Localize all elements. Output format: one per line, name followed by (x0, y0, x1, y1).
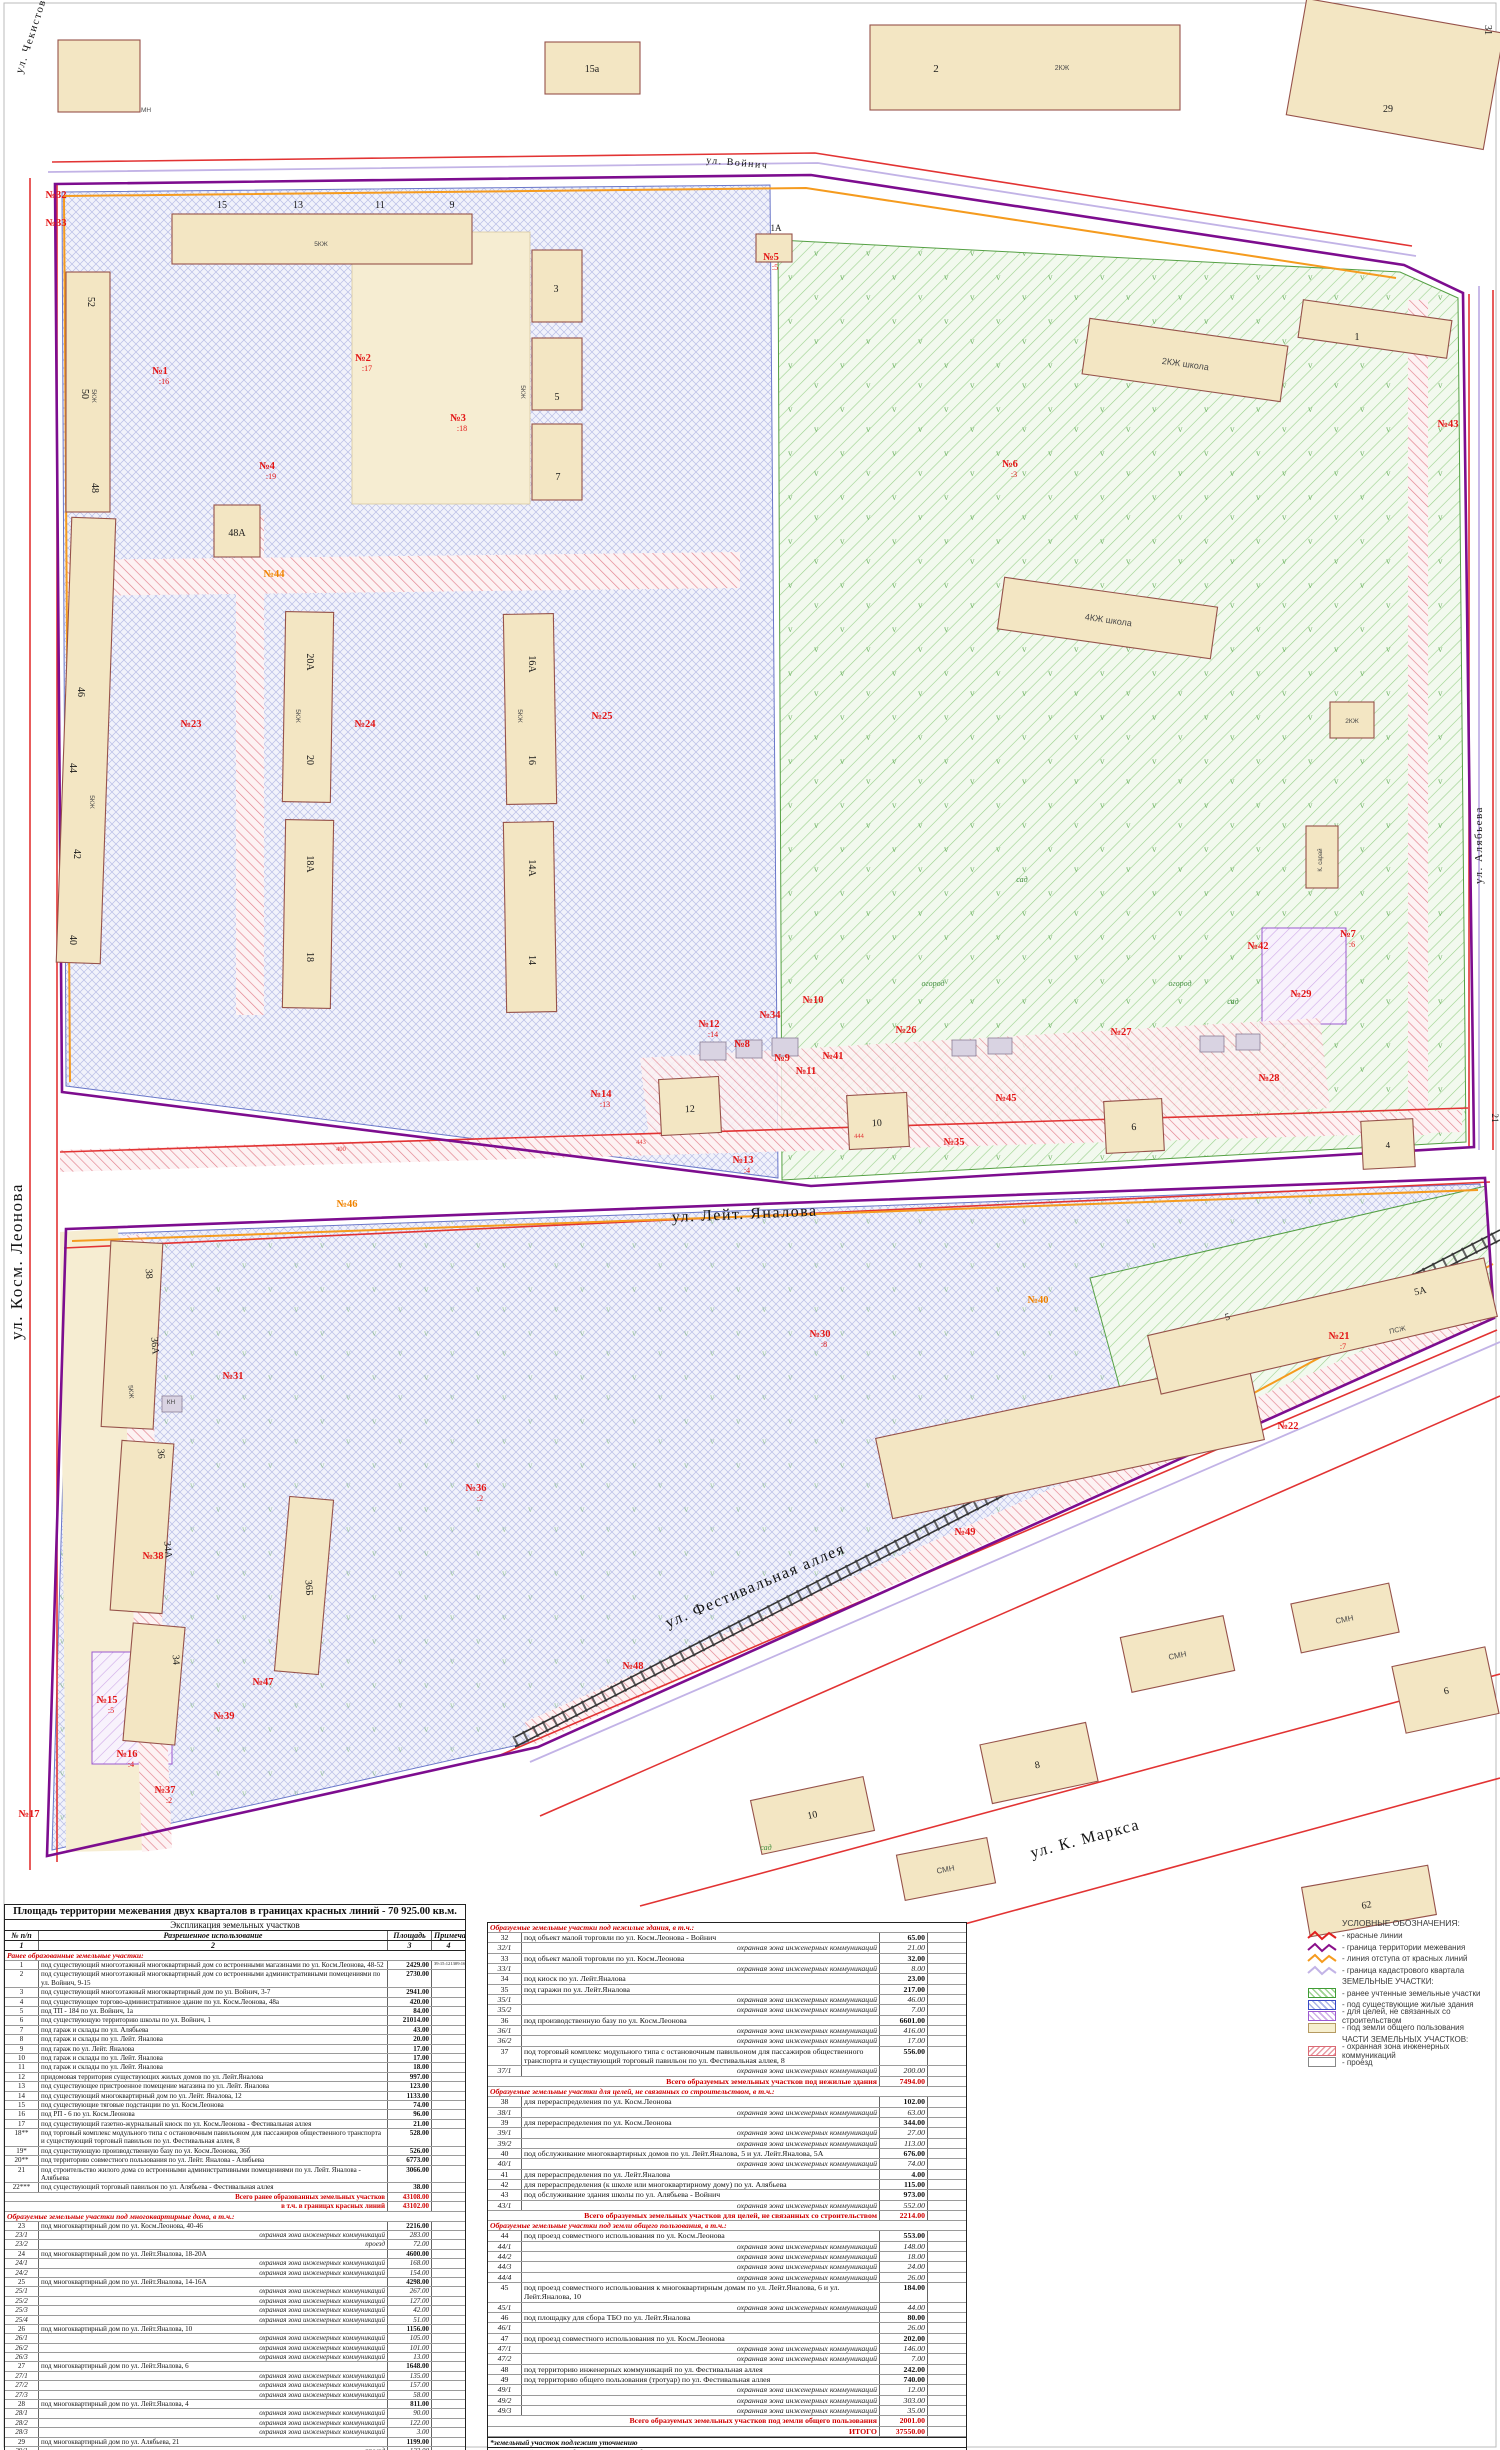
parcel-number: 6 (5, 2016, 39, 2024)
table-colnum-row: 1234 (5, 1941, 465, 1951)
table-row: 33под объект малой торговли по ул. Косм.… (488, 1954, 966, 1964)
subparcel-use: охранная зона инженерных коммуникаций (522, 2128, 880, 2137)
subparcel-number: 49/1 (488, 2385, 522, 2394)
shed (988, 1038, 1012, 1054)
parcel-number-label: №46 (336, 1199, 357, 1210)
building-type-label: 5КЖ (314, 241, 327, 248)
subparcel-use: проезд (39, 2240, 388, 2248)
table-subrow: 44/2охранная зона инженерных коммуникаци… (488, 2252, 966, 2262)
subparcel-area: 42.00 (388, 2306, 432, 2314)
total-area: 37550.00 (880, 2427, 928, 2436)
permitted-use: под строительство жилого дома со встроен… (39, 2166, 388, 2183)
note-cell (432, 2353, 465, 2361)
table-row: 11под гараж и склады по ул. Лейт. Яналов… (5, 2063, 465, 2072)
table-title: Площадь территории межевания двух кварта… (5, 1905, 465, 1920)
legend-item-label: - граница кадастрового квартала (1342, 1966, 1464, 1975)
parcel-number: 45 (488, 2283, 522, 2302)
area-value: 1199.00 (388, 2438, 432, 2446)
permitted-use: под многоквартирный дом по ул. Косм.Леон… (39, 2222, 388, 2230)
subparcel-use: охранная зона инженерных коммуникаций (39, 2269, 388, 2277)
table-row: 42для перераспределения (к школе или мно… (488, 2180, 966, 2190)
note-cell (432, 2316, 465, 2324)
permitted-use: под существующий многоэтажный многокварт… (39, 1961, 388, 1969)
legend-item: - граница территории межевания (1306, 1942, 1500, 1954)
table-row: 15под существующие тяговые подстанции по… (5, 2101, 465, 2110)
table-subrow: 39/2охранная зона инженерных коммуникаци… (488, 2139, 966, 2149)
table-row: 13под существующее пристроенное помещени… (5, 2082, 465, 2091)
area-value: 1648.00 (388, 2362, 432, 2370)
parcel-number-label: №10 (802, 995, 823, 1006)
subparcel-area: 90.00 (388, 2409, 432, 2417)
table-subrow: 39/1охранная зона инженерных коммуникаци… (488, 2128, 966, 2138)
building-number-label: 14А (526, 859, 537, 877)
subparcel-number: 27/3 (5, 2391, 39, 2399)
legend-area-symbol (1306, 2011, 1338, 2021)
subparcel-area: 27.00 (880, 2128, 928, 2137)
note-cell (432, 2166, 465, 2183)
permitted-use: под многоквартирный дом по ул. Лейт.Янал… (39, 2400, 388, 2408)
note-cell (928, 2354, 966, 2363)
total-area: 43102.00 (388, 2202, 432, 2210)
note-cell (928, 2273, 966, 2282)
subparcel-number: 43/1 (488, 2201, 522, 2210)
note-cell (928, 1933, 966, 1942)
column-number: 3 (388, 1941, 432, 1950)
table-subrow: 27/2охранная зона инженерных коммуникаци… (5, 2381, 465, 2390)
subparcel-area: 157.00 (388, 2381, 432, 2389)
area-value: 2216.00 (388, 2222, 432, 2230)
area-value: 553.00 (880, 2231, 928, 2240)
table-row: 3под существующий многоэтажный многоквар… (5, 1988, 465, 1997)
permitted-use: под торговый комплекс модульного типа с … (39, 2129, 388, 2146)
table-row: 27под многоквартирный дом по ул. Лейт.Ян… (5, 2362, 465, 2371)
permitted-use: под гараж по ул. Лейт. Яналова (39, 2045, 388, 2053)
note-cell (928, 2344, 966, 2353)
building-number-label: 46 (75, 687, 86, 697)
permitted-use: под существующий многоэтажный многокварт… (39, 1970, 388, 1987)
note-cell (432, 2073, 465, 2081)
note-cell (432, 2419, 465, 2427)
subparcel-area: 44.00 (880, 2303, 928, 2312)
parcel-number: 15 (5, 2101, 39, 2109)
grand-total-row: ИТОГО37550.00 (488, 2427, 966, 2437)
area-value: 84.00 (388, 2007, 432, 2015)
note-cell (432, 2269, 465, 2277)
note-cell (928, 2396, 966, 2405)
parcel-number: 23 (5, 2222, 39, 2230)
parcel-cadastral-label: :5 (772, 263, 778, 272)
subparcel-use: охранная зона инженерных коммуникаций (522, 2139, 880, 2148)
note-cell (432, 2183, 465, 2191)
subparcel-area: 24.00 (880, 2262, 928, 2271)
subparcel-use: охранная зона инженерных коммуникаций (522, 2005, 880, 2014)
building-number-label: 31 (1482, 25, 1493, 35)
table-subrow: 27/3охранная зона инженерных коммуникаци… (5, 2391, 465, 2400)
table-subrow: 35/1охранная зона инженерных коммуникаци… (488, 1995, 966, 2005)
subparcel-area: 74.00 (880, 2159, 928, 2168)
building-number-label: 12 (685, 1104, 696, 1116)
building-type-label: 2КЖ (1055, 65, 1070, 72)
permitted-use: для перераспределения по ул. Лейт.Яналов… (522, 2170, 880, 2179)
legend-title: УСЛОВНЫЕ ОБОЗНАЧЕНИЯ: (1342, 1918, 1500, 1928)
subparcel-number: 45/1 (488, 2303, 522, 2312)
parcel-number-label: №27 (1110, 1027, 1131, 1038)
table-row: 37под торговый комплекс модульного типа … (488, 2047, 966, 2067)
subparcel-use: охранная зона инженерных коммуникаций (39, 2334, 388, 2342)
note-cell (928, 2077, 966, 2086)
parcel-number-label: №47 (252, 1677, 273, 1688)
subparcel-use: охранная зона инженерных коммуникаций (522, 2159, 880, 2168)
total-row: Всего образуемых земельных участков для … (488, 2211, 966, 2221)
legend-item-label: - линия отступа от красных линий (1342, 1954, 1468, 1963)
street-label: ул. Косм. Леонова (7, 1183, 26, 1340)
area-value: 38.00 (388, 2183, 432, 2191)
legend-area-symbol (1306, 2000, 1338, 2010)
note-cell (928, 2159, 966, 2168)
subparcel-use: охранная зона инженерных коммуникаций (39, 2287, 388, 2295)
subparcel-number: 39/2 (488, 2139, 522, 2148)
building (282, 612, 333, 803)
table-row: 25под многоквартирный дом по ул. Лейт.Ян… (5, 2278, 465, 2287)
total-label: ИТОГО (488, 2427, 880, 2436)
table-subrow: 26/3охранная зона инженерных коммуникаци… (5, 2353, 465, 2362)
building (282, 820, 333, 1009)
table-row: 20**под территорию совместного пользован… (5, 2156, 465, 2165)
parcel-number-label: №36 (465, 1483, 486, 1494)
parcel-number: 10 (5, 2054, 39, 2062)
note-cell (432, 2026, 465, 2034)
note-cell (432, 2082, 465, 2090)
note-cell (432, 2240, 465, 2248)
building-type-label: 2КЖ (1345, 718, 1358, 725)
legend-item: - красные линии (1306, 1930, 1500, 1942)
subparcel-number: 27/2 (5, 2381, 39, 2389)
subparcel-number: 25/4 (5, 2316, 39, 2324)
table-row: 46под площадку для сбора ТБО по ул. Лейт… (488, 2313, 966, 2323)
subparcel-number: 39/1 (488, 2128, 522, 2137)
parcel-number: 22*** (5, 2183, 39, 2191)
table-subrow: 33/1охранная зона инженерных коммуникаци… (488, 1964, 966, 1974)
parcel-cadastral-label: :16 (159, 377, 169, 386)
legend-section-header: ЗЕМЕЛЬНЫЕ УЧАСТКИ: (1342, 1976, 1500, 1988)
permitted-use: под торговый комплекс модульного типа с … (522, 2047, 880, 2066)
subparcel-use: охранная зона инженерных коммуникаций (522, 1964, 880, 1973)
note-cell (432, 2222, 465, 2230)
table-row: 6под существующую территорию школы по ул… (5, 2016, 465, 2025)
footnote-row: *земельный участок подлежит уточнению (488, 2437, 966, 2447)
column-number: 4 (432, 1941, 465, 1950)
area-value: 43.00 (388, 2026, 432, 2034)
note-cell (432, 2156, 465, 2164)
parcel-number: 17 (5, 2120, 39, 2128)
note-cell (928, 1995, 966, 2004)
note-cell (928, 2180, 966, 2189)
building (1286, 0, 1500, 149)
building-type-label: МН (141, 107, 151, 114)
parcel-number: 28 (5, 2400, 39, 2408)
parcel-cadastral-label: :2 (166, 1796, 172, 1805)
subparcel-use: охранная зона инженерных коммуникаций (522, 2242, 880, 2251)
note-cell (928, 2026, 966, 2035)
building-number-label: 5 (555, 392, 560, 403)
note-cell (432, 2381, 465, 2389)
total-area: 2001.00 (880, 2416, 928, 2425)
permitted-use: под существующее торгово-административно… (39, 1998, 388, 2006)
note-cell (928, 2242, 966, 2251)
area-value: 4298.00 (388, 2278, 432, 2286)
note-cell (432, 1998, 465, 2006)
subparcel-number: 46/1 (488, 2323, 522, 2332)
subparcel-area: 101.00 (388, 2344, 432, 2352)
permitted-use: под ТП - 184 по ул. Войнич, 1а (39, 2007, 388, 2015)
subparcel-number: 24/2 (5, 2269, 39, 2277)
vegetation-label: огород (1168, 979, 1191, 988)
vegetation-label: сад (760, 1843, 771, 1852)
explication-table-right: Образуемые земельные участки под нежилые… (487, 1922, 967, 2450)
subparcel-number: 26/3 (5, 2353, 39, 2361)
parcel-number: 12 (5, 2073, 39, 2081)
building-number-label: 11 (375, 200, 385, 211)
building-number-label: 44 (67, 763, 78, 773)
subparcel-number: 47/2 (488, 2354, 522, 2363)
table-row: 1под существующий многоэтажный многоквар… (5, 1961, 465, 1970)
subparcel-number: 38/1 (488, 2108, 522, 2117)
section-header-row: Образуемые земельные участки для целей, … (488, 2087, 966, 2097)
note-cell (432, 2278, 465, 2286)
subparcel-number: 37/1 (488, 2066, 522, 2075)
subparcel-number: 28/3 (5, 2428, 39, 2436)
parcel-number-label: №12 (698, 1019, 719, 1030)
subparcel-use: охранная зона инженерных коммуникаций (39, 2353, 388, 2361)
area-value: 20.00 (388, 2035, 432, 2043)
note-cell (928, 1954, 966, 1963)
subparcel-area: 154.00 (388, 2269, 432, 2277)
legend-item-label: - проезд (1342, 2058, 1373, 2067)
shed (1236, 1034, 1260, 1050)
subparcel-use: охранная зона инженерных коммуникаций (39, 2316, 388, 2324)
subparcel-area: 7.00 (880, 2005, 928, 2014)
subparcel-number: 25/1 (5, 2287, 39, 2295)
table-row: 41для перераспределения по ул. Лейт.Янал… (488, 2170, 966, 2180)
subparcel-use: охранная зона инженерных коммуникаций (39, 2428, 388, 2436)
vegetation-label: огород (921, 979, 944, 988)
parcel-number: 20** (5, 2156, 39, 2164)
table-header-row: № п/пРазрешенное использованиеПлощадьПри… (5, 1931, 465, 1941)
parcel-number: 36 (488, 2016, 522, 2025)
note-cell (432, 2231, 465, 2239)
table-row: 23под многоквартирный дом по ул. Косм.Ле… (5, 2222, 465, 2231)
permitted-use: под существующую территорию школы по ул.… (39, 2016, 388, 2024)
section-header-row: Образуемые земельные участки под нежилые… (488, 1923, 966, 1933)
building (58, 40, 140, 112)
total-row: Всего ранее образованных земельных участ… (5, 2193, 465, 2202)
total-label: Всего образуемых земельных участков под … (488, 2077, 880, 2086)
parcel-number-label: №22 (1277, 1421, 1298, 1432)
parcel-number: 48 (488, 2365, 522, 2374)
area-value: 2730.00 (388, 1970, 432, 1987)
subparcel-number: 35/1 (488, 1995, 522, 2004)
table-row: 12придомовая территория существующих жил… (5, 2073, 465, 2082)
building-number-label: 34 (170, 1654, 182, 1665)
note-cell (928, 2283, 966, 2302)
parcel-number-label: №29 (1290, 989, 1311, 1000)
note-cell (432, 2007, 465, 2015)
permitted-use: под многоквартирный дом по ул. Лейт.Янал… (39, 2250, 388, 2258)
subparcel-area: 135.00 (388, 2372, 432, 2380)
building-type-label: К. сарай (1317, 848, 1324, 871)
legend-area-symbol (1306, 2057, 1338, 2067)
street-label: ул. К. Маркса (1029, 1816, 1142, 1862)
area-value: 4.00 (880, 2170, 928, 2179)
note-cell (432, 2400, 465, 2408)
building-number-label: 14 (526, 955, 537, 965)
subparcel-number: 32/1 (488, 1943, 522, 1952)
parcel-number: 25 (5, 2278, 39, 2286)
building (110, 1440, 174, 1613)
table-row: 32под объект малой торговли по ул. Косм.… (488, 1933, 966, 1943)
area-value: 740.00 (880, 2375, 928, 2384)
permitted-use: под многоквартирный дом по ул. Алябьева,… (39, 2438, 388, 2446)
permitted-use: под гараж и склады по ул. Лейт. Яналова (39, 2063, 388, 2071)
parcel-number-label: №40 (1027, 1295, 1048, 1306)
area-value: 102.00 (880, 2097, 928, 2106)
table-subrow: 25/4охранная зона инженерных коммуникаци… (5, 2316, 465, 2325)
table-subrow: 49/2охранная зона инженерных коммуникаци… (488, 2396, 966, 2406)
area-value: 65.00 (880, 1933, 928, 1942)
parcel-cadastral-label: :8 (821, 1340, 827, 1349)
subparcel-area: 148.00 (880, 2242, 928, 2251)
table-row: 10под гараж и склады по ул. Лейт. Яналов… (5, 2054, 465, 2063)
permitted-use: под существующий многоквартирный дом по … (39, 2092, 388, 2100)
subparcel-area: 26.00 (880, 2273, 928, 2282)
explication-table-left: Площадь территории межевания двух кварта… (4, 1904, 466, 2450)
table-row: 48под территорию инженерных коммуникаций… (488, 2365, 966, 2375)
table-subrow: 36/2охранная зона инженерных коммуникаци… (488, 2036, 966, 2046)
subparcel-number: 28/2 (5, 2419, 39, 2427)
permitted-use: под существующую производственную базу п… (39, 2147, 388, 2155)
subparcel-use: охранная зона инженерных коммуникаций (522, 2303, 880, 2312)
note-cell (928, 2201, 966, 2210)
subparcel-number: 36/2 (488, 2036, 522, 2045)
permitted-use: под киоск по ул. Лейт.Яналова (522, 1974, 880, 1983)
area-value: 2429.00 (388, 1961, 432, 1969)
table-subrow: 37/1охранная зона инженерных коммуникаци… (488, 2066, 966, 2076)
subparcel-area: 113.00 (880, 2139, 928, 2148)
permitted-use: под производственную базу по ул. Косм.Ле… (522, 2016, 880, 2025)
permitted-use: под гаражи по ул. Лейт.Яналова (522, 1985, 880, 1994)
table-row: 29под многоквартирный дом по ул. Алябьев… (5, 2438, 465, 2447)
column-header: № п/п (5, 1931, 39, 1940)
area-value: 115.00 (880, 2180, 928, 2189)
note-cell (928, 2313, 966, 2322)
note-cell (928, 1985, 966, 1994)
area-value: 96.00 (388, 2110, 432, 2118)
total-area: 2214.00 (880, 2211, 928, 2220)
parcel-number: 38 (488, 2097, 522, 2106)
parcel-cadastral-label: :18 (457, 424, 467, 433)
note-cell (432, 2428, 465, 2436)
building-number-label: 15а (585, 64, 600, 75)
parcel-cadastral-label: :4 (128, 1760, 134, 1769)
parcel-number: 16 (5, 2110, 39, 2118)
table-row: 26под многоквартирный дом по ул. Лейт.Ян… (5, 2325, 465, 2334)
table-subrow: 38/1охранная зона инженерных коммуникаци… (488, 2108, 966, 2118)
table-subrow: 43/1охранная зона инженерных коммуникаци… (488, 2201, 966, 2211)
table-row: 28под многоквартирный дом по ул. Лейт.Ян… (5, 2400, 465, 2409)
subparcel-area: 21.00 (880, 1943, 928, 1952)
table-subrow: 25/1охранная зона инженерных коммуникаци… (5, 2287, 465, 2296)
parcel-number-label: №6 (1002, 459, 1018, 470)
permitted-use: под многоквартирный дом по ул. Лейт.Янал… (39, 2325, 388, 2333)
table-subrow: 23/2проезд72.00 (5, 2240, 465, 2249)
legend-line-symbol (1306, 1965, 1338, 1976)
subparcel-area: 3.00 (388, 2428, 432, 2436)
area-value: 420.00 (388, 1998, 432, 2006)
subparcel-use: охранная зона инженерных коммуникаций (522, 2344, 880, 2353)
permitted-use: под территорию совместного пользования п… (39, 2156, 388, 2164)
parcel-number: 49 (488, 2375, 522, 2384)
building-number-label: 18А (304, 855, 315, 873)
note-cell (432, 2063, 465, 2071)
note-cell (928, 2005, 966, 2014)
subparcel-area: 18.00 (880, 2252, 928, 2261)
parcel-number-label: №11 (796, 1066, 816, 1077)
parcel-number-label: №4 (259, 461, 276, 472)
table-subrow: 26/2охранная зона инженерных коммуникаци… (5, 2344, 465, 2353)
building (123, 1623, 185, 1745)
subparcel-number: 44/4 (488, 2273, 522, 2282)
building-number-label: 7 (556, 472, 561, 483)
permitted-use: для перераспределения по ул. Косм.Леонов… (522, 2097, 880, 2106)
street-label: ул. Чекистов (13, 0, 48, 75)
legend-area-symbol (1306, 1988, 1338, 1998)
building-type-label: 5КЖ (90, 389, 97, 402)
parcel-number: 7 (5, 2026, 39, 2034)
building (172, 214, 472, 264)
subparcel-use: охранная зона инженерных коммуникаций (39, 2419, 388, 2427)
building-type-label: 5КЖ (88, 795, 95, 808)
parcel-number-label: №7 (1340, 929, 1356, 940)
parcel-cadastral-label: :2 (477, 1494, 483, 1503)
legend-item-label: - ранее учтенные земельные участки (1342, 1989, 1480, 1998)
legend-line-symbol (1306, 1942, 1338, 1953)
subparcel-number: 35/2 (488, 2005, 522, 2014)
building-number-label: 1А (771, 223, 783, 233)
table-subrow: 26/1охранная зона инженерных коммуникаци… (5, 2334, 465, 2343)
area-value: 1133.00 (388, 2092, 432, 2100)
subparcel-area: 17.00 (880, 2036, 928, 2045)
building-number-label: 10 (872, 1118, 883, 1130)
building-type-label: 5КЖ (294, 709, 301, 722)
building (503, 614, 556, 805)
subparcel-number: 36/1 (488, 2026, 522, 2035)
note-cell (928, 2231, 966, 2240)
table-subrow: 28/3охранная зона инженерных коммуникаци… (5, 2428, 465, 2437)
building-number-label: 38 (143, 1268, 155, 1279)
note-cell (432, 2334, 465, 2342)
table-subrow: 25/3охранная зона инженерных коммуникаци… (5, 2306, 465, 2315)
subparcel-number: 49/3 (488, 2406, 522, 2415)
cadastral-plan-sheet: v v (0, 0, 1500, 2450)
parcel-number: 41 (488, 2170, 522, 2179)
building-number-label: 48 (89, 483, 100, 493)
permitted-use: под проезд совместного использования по … (522, 2231, 880, 2240)
parcel-number-label: №44 (263, 569, 285, 580)
permitted-use: придомовая территория существующих жилых… (39, 2073, 388, 2081)
note-cell (928, 1943, 966, 1952)
note-cell (432, 2101, 465, 2109)
note-cell (928, 1974, 966, 1983)
